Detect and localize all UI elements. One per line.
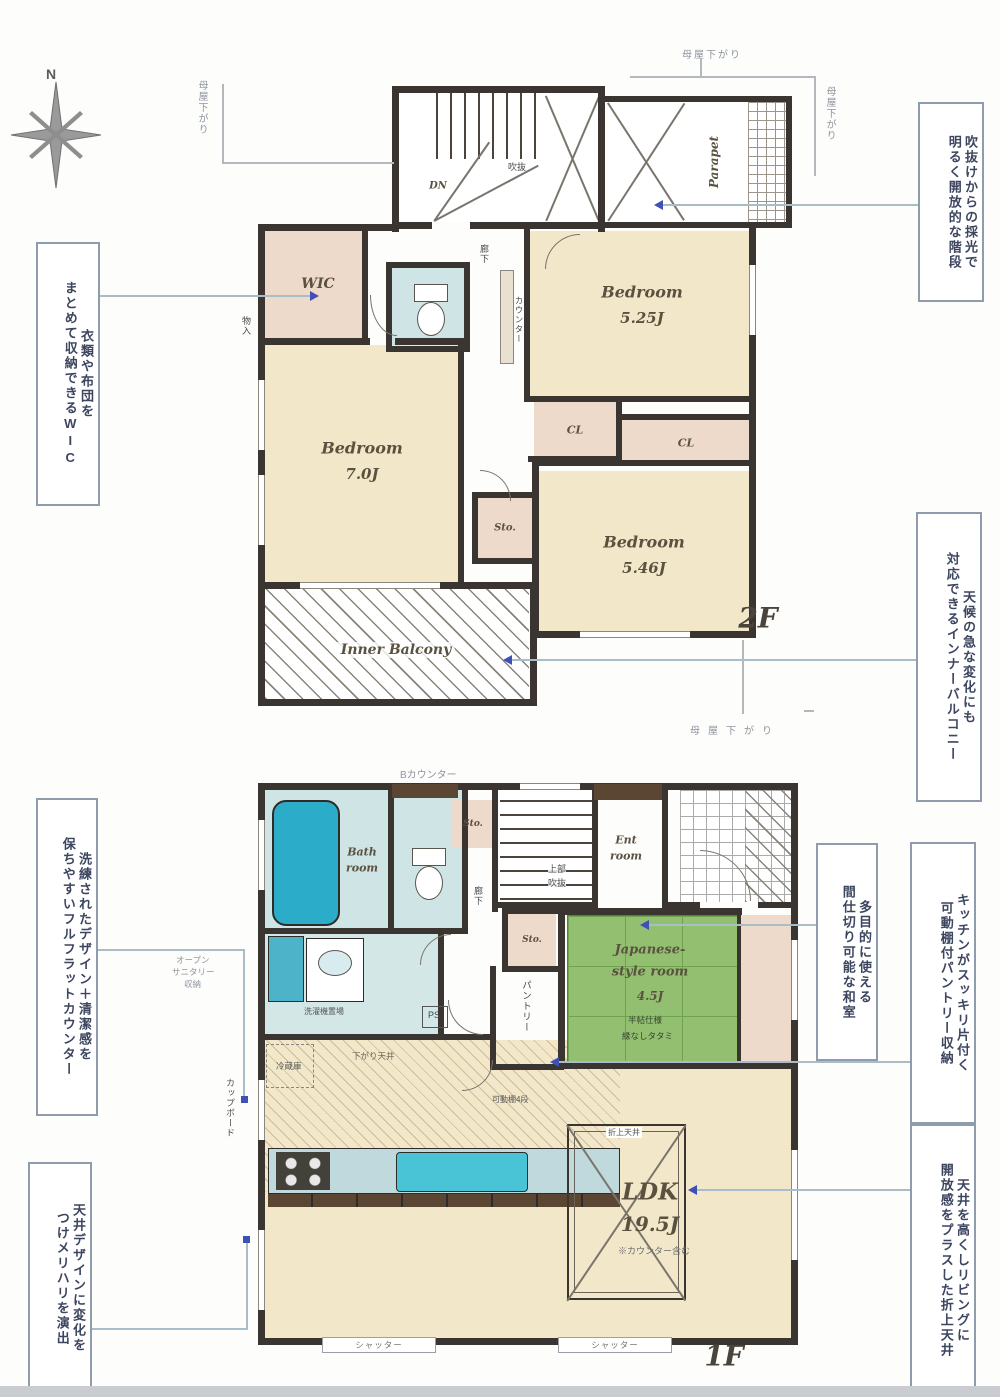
washing-machine [268,936,304,1002]
annotation-text: 対応できるインナーバルコニー [944,520,960,794]
leader-counter-dot [241,1096,248,1103]
open-storage-1: オープン [176,954,210,966]
bedroom2-floor [265,345,458,582]
window [300,582,440,589]
ldk-note: ※カウンター含む [618,1244,690,1257]
sto-2f-label: Sto. [494,523,516,534]
annotation-text: 可動棚付パントリー収納 [938,850,954,1116]
wall [392,86,604,93]
toilet-icon [414,284,448,302]
annotation-text: 洗練されたデザイン＋清潔感を [76,806,92,1108]
wall [558,908,565,1069]
wall [791,783,798,1345]
wall [464,262,470,352]
open-storage-3: 収納 [184,978,201,990]
wall [490,966,496,1070]
annotation-text: 間仕切り可能な和室 [840,851,856,1053]
jp-room-note-2: 縁なしタタミ [622,1030,673,1042]
door-arc [448,1000,483,1035]
window [580,631,690,638]
wall [462,786,468,934]
bedroom1-size: 5.25J [620,309,664,327]
wall [392,86,399,232]
lowered-ceiling-label: 下がり天井 [352,1050,395,1062]
wall [472,492,478,564]
dim-line [742,640,744,714]
void-above-2: 吹抜 [548,876,566,889]
window [791,1150,798,1260]
moyasagari-top: 母屋下がり [682,46,742,61]
window [258,820,265,890]
cabinet-top [594,784,662,800]
wall [558,908,742,915]
jp-room-name-2: style room [612,965,689,980]
wall [362,228,368,344]
leader-balcony [512,659,916,661]
dim-line [222,162,394,164]
bath-name-1: Bath [347,846,377,859]
wall [388,786,394,934]
wall [758,902,798,908]
dim-line [222,84,224,164]
annotation-coved-ceiling: 天井を高くしリビングに 開放感をプラスした折上天井 [910,1124,976,1396]
jp-room-size: 4.5J [637,989,664,1003]
floor-plan-page: N [0,0,1000,1397]
fukinuke-label: 吹抜 [508,160,526,173]
dim-line [630,76,816,78]
wall [258,928,394,934]
dim-line [814,76,816,176]
annotation-text: つけメリハリを演出 [54,1170,70,1386]
floor1-label: 1F [704,1340,743,1373]
void-above-1: 上部 [548,862,566,875]
wall [502,908,564,914]
leader-washitsu [648,924,816,926]
leader-washitsu-arrow [640,920,649,930]
dn-label: DN [429,181,447,192]
leader-stair [662,204,918,206]
wall [388,928,468,934]
leader-ceiling-h [92,1328,248,1330]
shutter-left: シャッター [322,1337,436,1353]
wall [470,222,604,229]
annotation-text: 天井を高くしリビングに [954,1132,970,1388]
wall [598,86,605,232]
wall [558,1062,791,1069]
annotation-text: 明るく開放的な階段 [946,110,962,294]
wall [592,786,598,908]
ent-name-1: Ent [615,834,636,847]
leader-stair-arrow [654,200,663,210]
ps-label: PS [428,1010,440,1020]
leader-balcony-arrow [503,655,512,665]
stairs-2f [436,93,538,159]
counter-2f-label: カウンター [513,296,525,344]
inner-balcony-label: Inner Balcony [337,642,455,658]
coved-ceiling-label: 折上天井 [606,1127,642,1138]
leader-pantry-arrow [550,1057,559,1067]
compass-rose-icon [8,80,104,190]
wall [620,414,752,420]
bedroom3-size: 5.46J [622,559,666,577]
wall [502,966,562,972]
cl-left-label: CL [567,424,584,437]
leader-wic [100,295,310,297]
window [258,475,265,545]
sto1-label: Sto. [463,819,483,829]
cabinet-top [392,784,458,798]
door-arc [480,470,511,501]
floor2-label: 2F [738,602,777,635]
leader-coved-arrow [688,1185,697,1195]
toilet-icon [417,302,445,336]
moyasagari-right: 母屋下がり [822,86,837,178]
rouka-1f-label: 廊下 [472,886,485,906]
annotation-text: 天井デザインに変化を [70,1170,86,1386]
wall [458,344,464,584]
bedroom2-name: Bedroom [321,439,403,458]
toilet-icon [412,848,446,866]
counter-niche-2f [500,270,514,364]
annotation-text: 衣類や布団を [78,250,94,498]
dim-line [700,58,702,76]
page-bottom-strip [0,1386,1000,1397]
bathtub [272,800,340,926]
wall [395,338,465,345]
ldk-name: LDK [622,1179,678,1206]
wic-label: WIC [301,276,334,292]
wall [737,915,741,1062]
ldk-size: 19.5J [621,1212,679,1236]
leader-wic-arrow [310,291,319,301]
monoire-label: 物入 [240,316,253,336]
wall [532,460,756,466]
b-counter-label: Bカウンター [400,766,457,781]
annotation-ceiling-design: 天井デザインに変化を つけメリハリを演出 [28,1162,92,1394]
open-storage-2: サニタリー [172,966,215,978]
washbasin-bowl [318,950,352,976]
wall [786,96,792,228]
wall [258,699,536,706]
window [258,1080,265,1140]
rouka-2f-label: 廊下 [478,244,491,264]
wall [662,786,668,908]
cl-right-label: CL [678,437,695,450]
ent-name-2: room [610,850,642,863]
window [258,1230,265,1310]
stairs-1f [500,790,592,900]
annotation-text: 開放感をプラスした折上天井 [938,1132,954,1388]
entrance-hatch [745,790,791,902]
wall [386,262,470,268]
dim-line [804,710,814,712]
shutter-label: シャッター [355,1339,403,1351]
door-arc [370,295,397,336]
movable-shelf-label: 可動棚4段 [492,1094,528,1105]
annotation-text: キッチンがスッキリ片付く [954,850,970,1116]
wall [598,96,792,102]
bedroom1-name: Bedroom [601,283,683,302]
annotation-stair: 吹抜けからの採光で 明るく開放的な階段 [918,102,984,302]
annotation-pantry: キッチンがスッキリ片付く 可動棚付パントリー収納 [910,842,976,1124]
shutter-label: シャッター [591,1339,639,1351]
cupboard-label: カップボード [224,1078,237,1238]
wall [604,222,792,228]
tatami-closet-floor [741,915,791,1062]
wall [258,1034,494,1040]
jp-room-note-1: 半帖仕様 [628,1014,662,1026]
leader-ceiling-dot [243,1236,250,1243]
annotation-washitsu: 多目的に使える 間仕切り可能な和室 [816,843,878,1061]
fridge-label: 冷蔵庫 [276,1060,302,1072]
pantry-label: パントリー [518,980,532,1064]
leader-pantry [558,1061,910,1063]
annotation-text: 吹抜けからの採光で [962,110,978,294]
window [791,940,798,1020]
parapet-label: Parapet [707,136,721,188]
kitchen-stove [276,1152,330,1190]
wall [532,464,539,638]
annotation-balcony: 天候の急な変化にも 対応できるインナーバルコニー [916,512,982,802]
bedroom2-size: 7.0J [345,465,378,483]
moyasagari-bottom: 母屋下がり [690,722,780,737]
window [520,783,580,790]
wall [472,558,538,564]
bedroom3-name: Bedroom [603,533,685,552]
wall [258,224,398,231]
annotation-wic: 衣類や布団を まとめて収納できるWIC [36,242,100,506]
window [749,265,756,335]
annotation-text: 保ちやすいフルフラットカウンター [60,806,76,1108]
annotation-text: 天候の急な変化にも [960,520,976,794]
toilet-icon [415,866,443,900]
laundry-label: 洗濯機置場 [304,1006,344,1017]
annotation-text: 多目的に使える [856,851,872,1053]
moyasagari-topleft: 母屋下がり [194,80,209,170]
wall [492,786,498,912]
window [258,380,265,450]
wall [502,908,508,972]
wall [528,396,756,402]
shutter-right: シャッター [558,1337,672,1353]
leader-counter-v [243,949,245,1097]
wall [392,222,432,229]
leader-counter-h [98,949,245,951]
bath-name-2: room [346,862,378,875]
kitchen-sink [396,1152,528,1192]
annotation-text: まとめて収納できるWIC [62,250,78,498]
jp-room-name-1: Japanese- [615,943,686,958]
sto2-label: Sto. [522,935,542,945]
wall [258,338,370,345]
annotation-counter: 洗練されたデザイン＋清潔感を 保ちやすいフルフラットカウンター [36,798,98,1116]
leader-ceiling-v [246,1242,248,1330]
leader-coved [696,1189,910,1191]
